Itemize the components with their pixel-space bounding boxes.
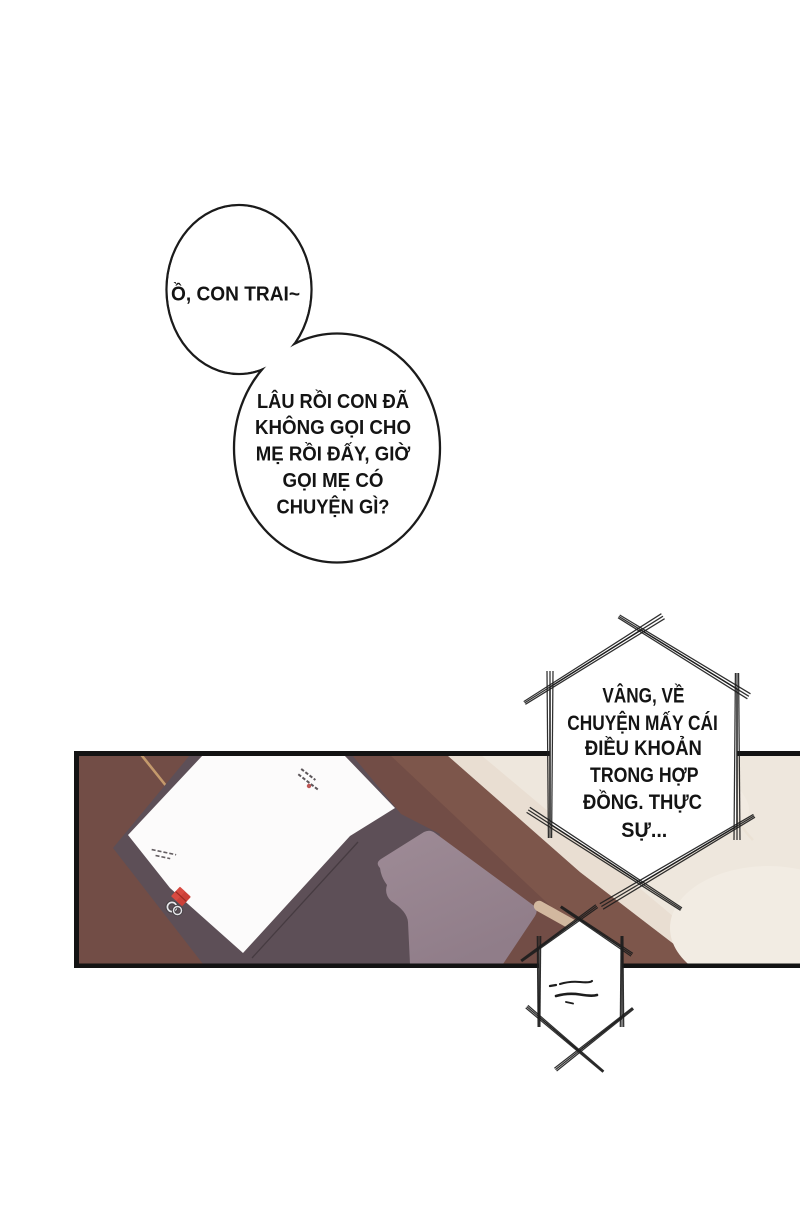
svg-text:CHUYỆN MẤY CÁI: CHUYỆN MẤY CÁI bbox=[567, 711, 718, 735]
svg-text:SỰ...: SỰ... bbox=[621, 819, 667, 842]
svg-text:TRONG HỢP: TRONG HỢP bbox=[590, 764, 699, 787]
svg-text:GỌI MẸ CÓ: GỌI MẸ CÓ bbox=[283, 468, 384, 492]
svg-text:ĐỒNG. THỰC: ĐỒNG. THỰC bbox=[583, 790, 702, 814]
svg-text:LÂU RỒI CON ĐÃ: LÂU RỒI CON ĐÃ bbox=[257, 389, 409, 413]
svg-text:MẸ RỒI ĐẤY, GIỜ: MẸ RỒI ĐẤY, GIỜ bbox=[256, 442, 411, 466]
svg-text:VÂNG, VỀ: VÂNG, VỀ bbox=[602, 683, 684, 707]
svg-text:CHUYỆN GÌ?: CHUYỆN GÌ? bbox=[277, 495, 390, 519]
svg-text:KHÔNG GỌI CHO: KHÔNG GỌI CHO bbox=[255, 415, 411, 439]
svg-text:ĐIỀU KHOẢN: ĐIỀU KHOẢN bbox=[585, 737, 702, 760]
svg-text:Ồ, CON TRAI~: Ồ, CON TRAI~ bbox=[171, 282, 300, 306]
